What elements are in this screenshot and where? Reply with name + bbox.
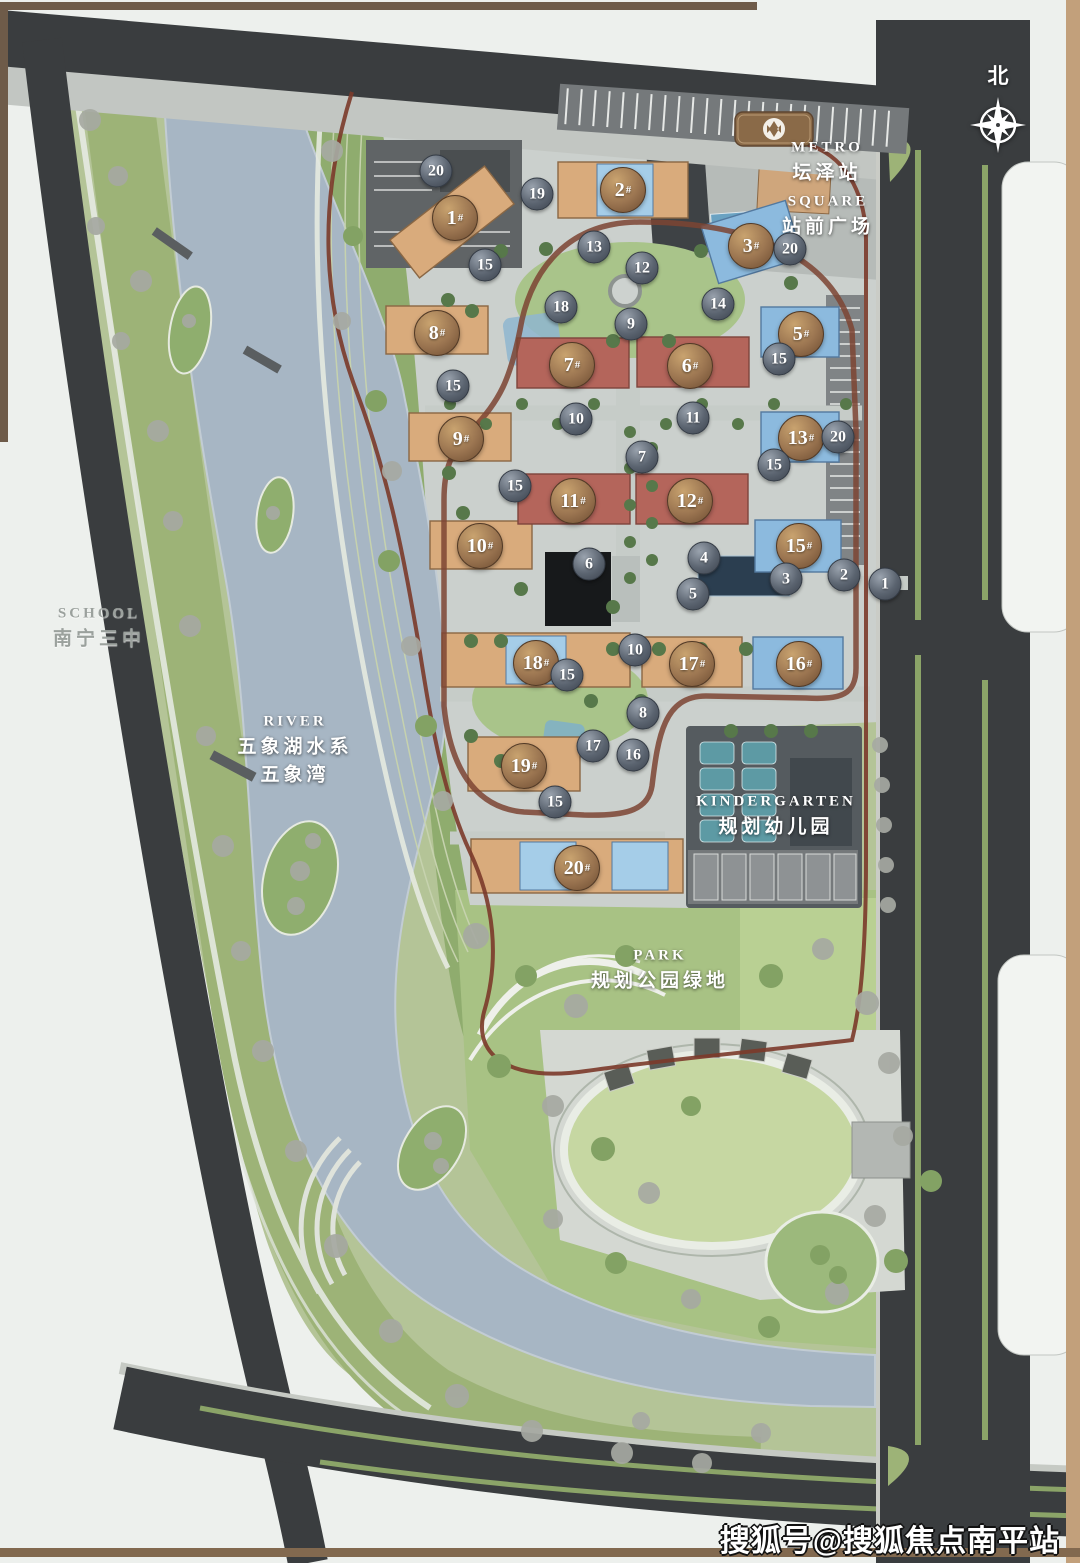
building-marker-19: 19# [501, 743, 547, 789]
frame-border-left [0, 2, 8, 442]
amenity-marker-20: 20 [822, 421, 855, 454]
amenity-marker-4: 4 [688, 542, 721, 575]
amenity-marker-15: 15 [763, 343, 796, 376]
amenity-marker-17: 17 [577, 730, 610, 763]
amenity-marker-19: 19 [521, 178, 554, 211]
amenity-marker-20: 20 [420, 155, 453, 188]
building-marker-11: 11# [550, 478, 596, 524]
amenity-marker-10: 10 [560, 403, 593, 436]
landmark-park: PARK规划公园绿地 [591, 948, 729, 993]
amenity-marker-15: 15 [758, 449, 791, 482]
building-marker-17: 17# [669, 641, 715, 687]
amenity-marker-13: 13 [578, 231, 611, 264]
amenity-marker-18: 18 [545, 291, 578, 324]
building-marker-1: 1# [432, 195, 478, 241]
compass: 北 [967, 60, 1029, 161]
amenity-marker-14: 14 [702, 288, 735, 321]
building-marker-2: 2# [600, 167, 646, 213]
building-marker-3: 3# [728, 223, 774, 269]
amenity-marker-7: 7 [626, 441, 659, 474]
landmark-square: SQUARE站前广场 [782, 194, 874, 239]
north-label: 北 [967, 60, 1029, 90]
compass-rose-icon [967, 94, 1029, 156]
building-marker-8: 8# [414, 310, 460, 356]
amenity-marker-15: 15 [551, 659, 584, 692]
amenity-marker-16: 16 [617, 739, 650, 772]
amenity-marker-6: 6 [573, 548, 606, 581]
landmark-river: RIVER五象湖水系五象湾 [237, 714, 352, 787]
building-marker-9: 9# [438, 416, 484, 462]
watermark: 搜狐号@搜狐焦点南平站 [720, 1516, 1060, 1560]
building-marker-16: 16# [776, 641, 822, 687]
amenity-marker-8: 8 [627, 697, 660, 730]
amenity-marker-1: 1 [869, 568, 902, 601]
amenity-marker-3: 3 [770, 563, 803, 596]
building-marker-6: 6# [667, 343, 713, 389]
amenity-marker-15: 15 [437, 370, 470, 403]
building-marker-7: 7# [549, 342, 595, 388]
amenity-marker-10: 10 [619, 634, 652, 667]
frame-border-top [0, 2, 757, 10]
frame-border-right [1066, 0, 1080, 1563]
amenity-marker-11: 11 [677, 402, 710, 435]
site-plan-image: 1#2#3#5#6#7#8#9#10#11#12#13#15#16#17#18#… [0, 0, 1080, 1563]
amenity-marker-2: 2 [828, 559, 861, 592]
amenity-marker-15: 15 [469, 249, 502, 282]
amenity-marker-20: 20 [774, 233, 807, 266]
landmark-school: SCHOOL南宁三中 [53, 606, 145, 651]
building-marker-12: 12# [667, 478, 713, 524]
landmark-kindergarten: KINDERGARTEN规划幼儿园 [696, 794, 856, 839]
building-marker-10: 10# [457, 523, 503, 569]
amenity-marker-9: 9 [615, 308, 648, 341]
amenity-marker-12: 12 [626, 252, 659, 285]
amenity-marker-15: 15 [539, 786, 572, 819]
landmark-metro: METRO坛泽站 [791, 140, 863, 185]
building-marker-20: 20# [554, 845, 600, 891]
amenity-marker-15: 15 [499, 470, 532, 503]
amenity-marker-5: 5 [677, 578, 710, 611]
